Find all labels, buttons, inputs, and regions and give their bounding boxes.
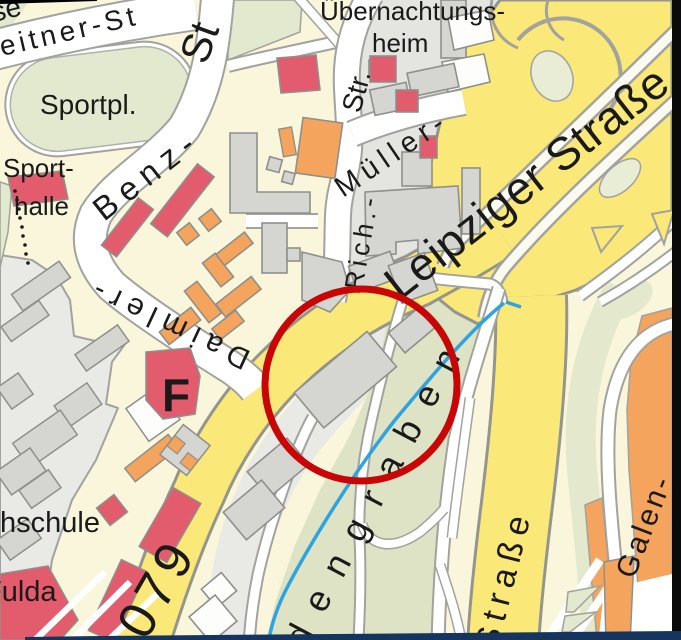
- svg-text:Sportpl.: Sportpl.: [40, 89, 137, 120]
- svg-text:heim: heim: [372, 28, 428, 58]
- svg-text:Fulda: Fulda: [0, 576, 57, 608]
- svg-text:hschule: hschule: [0, 507, 100, 539]
- svg-text:halle: halle: [14, 191, 69, 221]
- svg-text:Übernachtungs-: Übernachtungs-: [320, 0, 505, 26]
- svg-text:Sport-: Sport-: [3, 153, 74, 183]
- svg-text:F: F: [162, 369, 190, 421]
